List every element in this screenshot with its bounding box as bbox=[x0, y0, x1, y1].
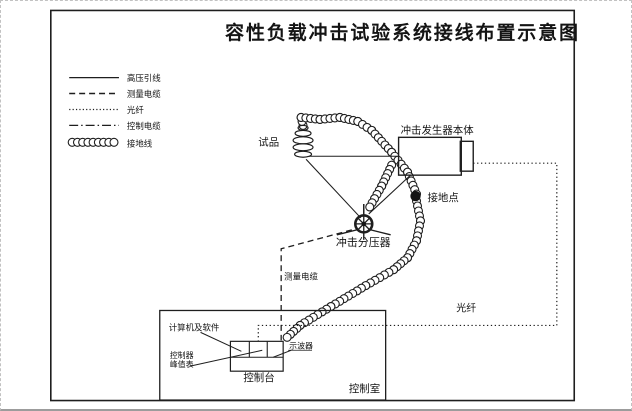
page-title: 容性负载冲击试验系统接线布置示意图 bbox=[225, 21, 580, 44]
impulse-divider-label: 冲击分压器 bbox=[336, 235, 391, 249]
control-room-label: 控制室 bbox=[349, 382, 380, 395]
fiber-label: 光纤 bbox=[456, 301, 476, 314]
leader-controller-peakmeter bbox=[190, 350, 263, 366]
legend-label-ground-wire: 接地线 bbox=[127, 138, 153, 148]
legend-label-hv-lead: 高压引线 bbox=[127, 73, 161, 83]
schematic-svg: 容性负载冲击试验系统接线布置示意图 高压引线 测量电缆 光纤 控制电缆 接地线 bbox=[1, 1, 631, 409]
legend: 高压引线 测量电缆 光纤 控制电缆 接地线 bbox=[68, 73, 161, 148]
computer-software-label: 计算机及软件 bbox=[169, 322, 220, 332]
specimen-label: 试品 bbox=[258, 135, 279, 148]
legend-label-control-cable: 控制电缆 bbox=[127, 121, 161, 131]
impulse-generator-label: 冲击发生器本体 bbox=[401, 123, 475, 136]
legend-label-measuring-cable: 测量电缆 bbox=[127, 89, 161, 99]
console-label: 控制台 bbox=[243, 371, 274, 384]
impulse-divider-symbol bbox=[337, 204, 391, 240]
ground-coil-to-console bbox=[283, 197, 424, 341]
controller-label: 控制器 bbox=[170, 350, 194, 360]
specimen-insulator bbox=[293, 125, 313, 157]
legend-label-fiber: 光纤 bbox=[127, 105, 144, 115]
ground-point-dot bbox=[410, 191, 420, 201]
ground-point-label: 接地点 bbox=[427, 191, 458, 204]
hv-lead-specimen-divider bbox=[306, 159, 361, 218]
oscilloscope-label: 示波器 bbox=[289, 340, 313, 350]
measuring-cable-label: 测量电缆 bbox=[284, 272, 318, 282]
legend-line-coil bbox=[68, 138, 118, 146]
peak-meter-label: 峰值表 bbox=[170, 359, 194, 369]
leader-oscilloscope bbox=[273, 350, 291, 357]
diagram-canvas: 容性负载冲击试验系统接线布置示意图 高压引线 测量电缆 光纤 控制电缆 接地线 bbox=[0, 0, 632, 411]
